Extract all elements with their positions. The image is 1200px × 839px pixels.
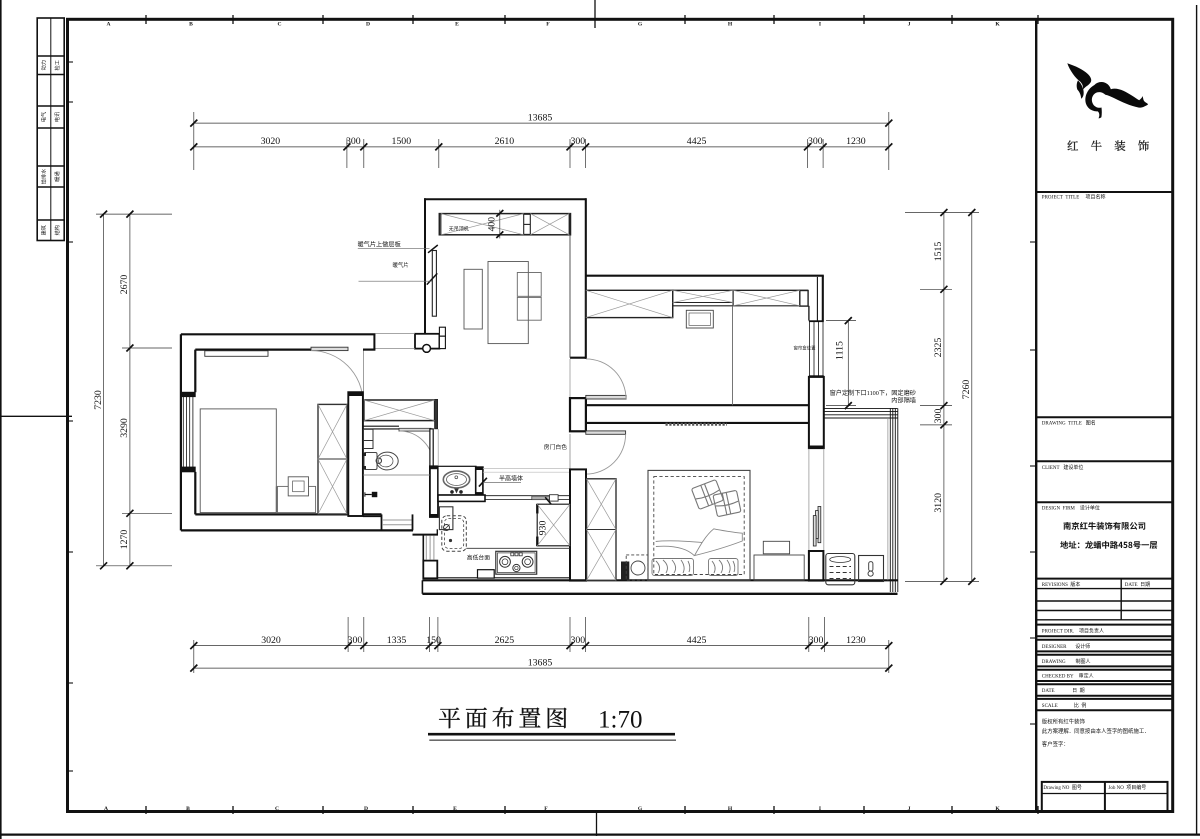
svg-text:结构: 结构 — [53, 225, 61, 235]
svg-text:此方案理解．同意按由本人签字的图纸施工．: 此方案理解．同意按由本人签字的图纸施工． — [1042, 727, 1150, 735]
svg-text:13685: 13685 — [528, 112, 553, 123]
svg-text:电气: 电气 — [40, 112, 48, 122]
svg-text:K: K — [995, 22, 1000, 28]
svg-text:检工: 检工 — [53, 60, 61, 70]
svg-text:B: B — [189, 22, 193, 28]
svg-text:3120: 3120 — [933, 493, 944, 513]
svg-text:DESIGN FIRM 设计单位: DESIGN FIRM 设计单位 — [1042, 505, 1100, 512]
svg-text:DRAWING 制图人: DRAWING 制图人 — [1042, 658, 1091, 665]
svg-text:客户签字：: 客户签字： — [1042, 740, 1069, 748]
svg-text:PROJECT TITLE 项目名称: PROJECT TITLE 项目名称 — [1042, 193, 1106, 200]
svg-text:Drawing NO 图号: Drawing NO 图号 — [1043, 785, 1081, 791]
svg-text:300: 300 — [570, 635, 585, 646]
svg-text:内部隔墙: 内部隔墙 — [891, 397, 916, 405]
svg-text:SCALE 比 例: SCALE 比 例 — [1042, 702, 1087, 709]
svg-text:C: C — [275, 806, 279, 812]
svg-text:J: J — [908, 806, 911, 812]
svg-text:7260: 7260 — [961, 380, 972, 400]
svg-text:DATE 日期: DATE 日期 — [1125, 582, 1150, 588]
svg-text:4425: 4425 — [687, 635, 707, 646]
svg-text:1230: 1230 — [846, 635, 866, 646]
svg-text:A: A — [104, 806, 108, 812]
svg-text:930: 930 — [538, 521, 549, 536]
svg-text:1500: 1500 — [392, 136, 412, 147]
svg-text:无吊顶机: 无吊顶机 — [449, 226, 469, 233]
svg-text:300: 300 — [809, 635, 824, 646]
svg-text:3290: 3290 — [119, 418, 130, 438]
svg-text:半高墙体: 半高墙体 — [499, 475, 523, 483]
svg-text:2610: 2610 — [495, 136, 515, 147]
svg-text:H: H — [728, 22, 733, 28]
svg-text:版权所有红牛装饰: 版权所有红牛装饰 — [1042, 718, 1086, 726]
svg-text:Job NO 项目编号: Job NO 项目编号 — [1108, 784, 1146, 791]
svg-text:D: D — [364, 806, 368, 812]
svg-text:DESIGNER 设计师: DESIGNER 设计师 — [1042, 643, 1090, 650]
svg-text:B: B — [186, 806, 190, 812]
svg-text:1230: 1230 — [846, 136, 866, 147]
svg-text:A: A — [106, 22, 110, 28]
svg-text:H: H — [728, 806, 733, 812]
svg-text:DRAWING TITLE 图名: DRAWING TITLE 图名 — [1042, 420, 1096, 427]
svg-text:7230: 7230 — [93, 390, 104, 410]
svg-text:1115: 1115 — [835, 341, 846, 360]
svg-text:暖通: 暖通 — [53, 171, 61, 182]
svg-text:建筑: 建筑 — [40, 224, 48, 235]
svg-text:窗帘盒位置: 窗帘盒位置 — [794, 345, 817, 352]
svg-text:300: 300 — [348, 635, 363, 646]
svg-text:1335: 1335 — [387, 635, 407, 646]
svg-text:G: G — [638, 22, 643, 28]
svg-text:1:70: 1:70 — [598, 707, 642, 734]
svg-text:300: 300 — [808, 136, 823, 147]
svg-text:300: 300 — [933, 409, 944, 424]
svg-text:2670: 2670 — [119, 275, 130, 295]
svg-text:400: 400 — [487, 217, 498, 232]
svg-text:D: D — [366, 22, 370, 28]
svg-text:K: K — [995, 806, 1000, 812]
svg-text:I: I — [819, 22, 821, 28]
svg-text:DATE 日 期: DATE 日 期 — [1042, 688, 1085, 694]
svg-text:房门白色: 房门白色 — [544, 443, 567, 451]
svg-text:窗户定制下口1100下，固定磨砂: 窗户定制下口1100下，固定磨砂 — [830, 389, 916, 397]
svg-text:REVISIONS 版本: REVISIONS 版本 — [1042, 581, 1081, 588]
svg-text:E: E — [455, 22, 459, 28]
svg-text:2325: 2325 — [933, 338, 944, 358]
svg-text:CHECKED BY 审定人: CHECKED BY 审定人 — [1042, 673, 1094, 680]
svg-text:3020: 3020 — [261, 136, 281, 147]
svg-text:300: 300 — [570, 136, 585, 147]
svg-text:动力: 动力 — [40, 60, 48, 70]
svg-text:13685: 13685 — [528, 657, 553, 668]
svg-text:电讯: 电讯 — [53, 111, 61, 122]
svg-text:1270: 1270 — [119, 530, 130, 550]
svg-text:3020: 3020 — [261, 635, 281, 646]
svg-text:F: F — [544, 806, 548, 812]
svg-text:CLIENT 建设单位: CLIENT 建设单位 — [1042, 464, 1084, 471]
svg-text:F: F — [546, 22, 550, 28]
svg-text:4425: 4425 — [687, 136, 707, 147]
svg-text:300: 300 — [346, 136, 361, 147]
svg-text:E: E — [453, 806, 457, 812]
svg-text:高低台面: 高低台面 — [467, 553, 490, 561]
svg-text:1515: 1515 — [933, 242, 944, 262]
svg-text:150: 150 — [426, 635, 441, 646]
svg-text:C: C — [277, 22, 281, 28]
svg-text:给排水: 给排水 — [40, 168, 48, 184]
svg-text:2625: 2625 — [495, 635, 515, 646]
svg-text:PROJECT DIR. 项目负责人: PROJECT DIR. 项目负责人 — [1042, 628, 1104, 635]
svg-text:暖气片上做层板: 暖气片上做层板 — [358, 240, 401, 248]
svg-text:I: I — [819, 806, 821, 812]
svg-text:暖气片: 暖气片 — [393, 261, 409, 269]
svg-text:J: J — [908, 22, 911, 28]
svg-text:G: G — [638, 806, 643, 812]
